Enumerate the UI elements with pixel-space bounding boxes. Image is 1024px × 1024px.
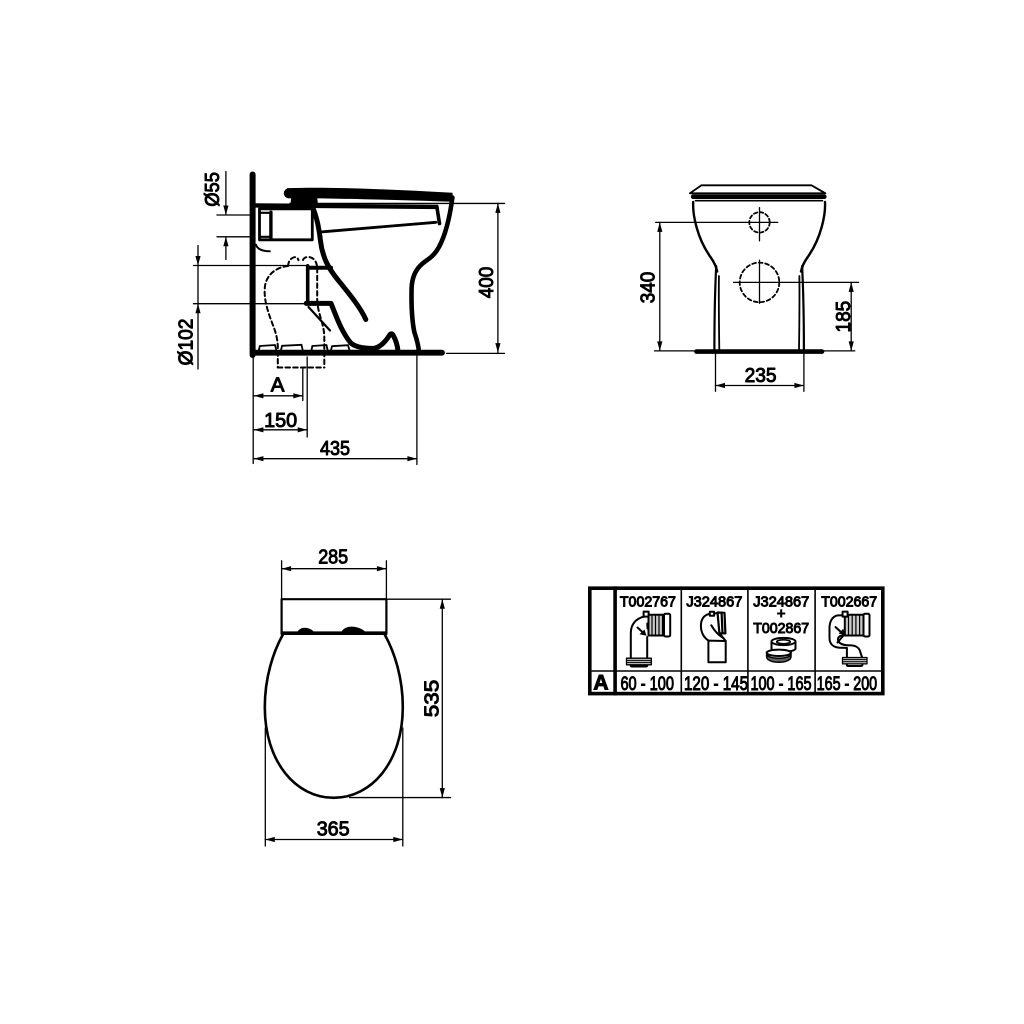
svg-text:A: A: [593, 671, 608, 694]
svg-text:100 - 165: 100 - 165: [751, 673, 812, 695]
svg-text:340: 340: [636, 272, 659, 304]
svg-text:365: 365: [317, 817, 350, 840]
svg-text:J324867: J324867: [686, 594, 742, 610]
svg-text:Ø55: Ø55: [201, 172, 224, 207]
svg-text:400: 400: [475, 267, 498, 299]
svg-text:60 - 100: 60 - 100: [620, 673, 674, 695]
svg-text:Ø102: Ø102: [175, 319, 198, 366]
svg-text:535: 535: [421, 680, 444, 718]
svg-text:150: 150: [264, 409, 297, 432]
svg-text:235: 235: [745, 364, 777, 387]
svg-text:120 - 145: 120 - 145: [684, 673, 748, 695]
svg-text:A: A: [271, 373, 285, 396]
svg-text:T002867: T002867: [753, 621, 809, 637]
svg-text:T002767: T002767: [620, 594, 676, 610]
svg-text:285: 285: [318, 545, 348, 568]
svg-text:+: +: [777, 607, 786, 623]
svg-text:435: 435: [320, 437, 350, 460]
svg-text:165 - 200: 165 - 200: [817, 673, 878, 695]
svg-text:T002667: T002667: [821, 594, 877, 610]
